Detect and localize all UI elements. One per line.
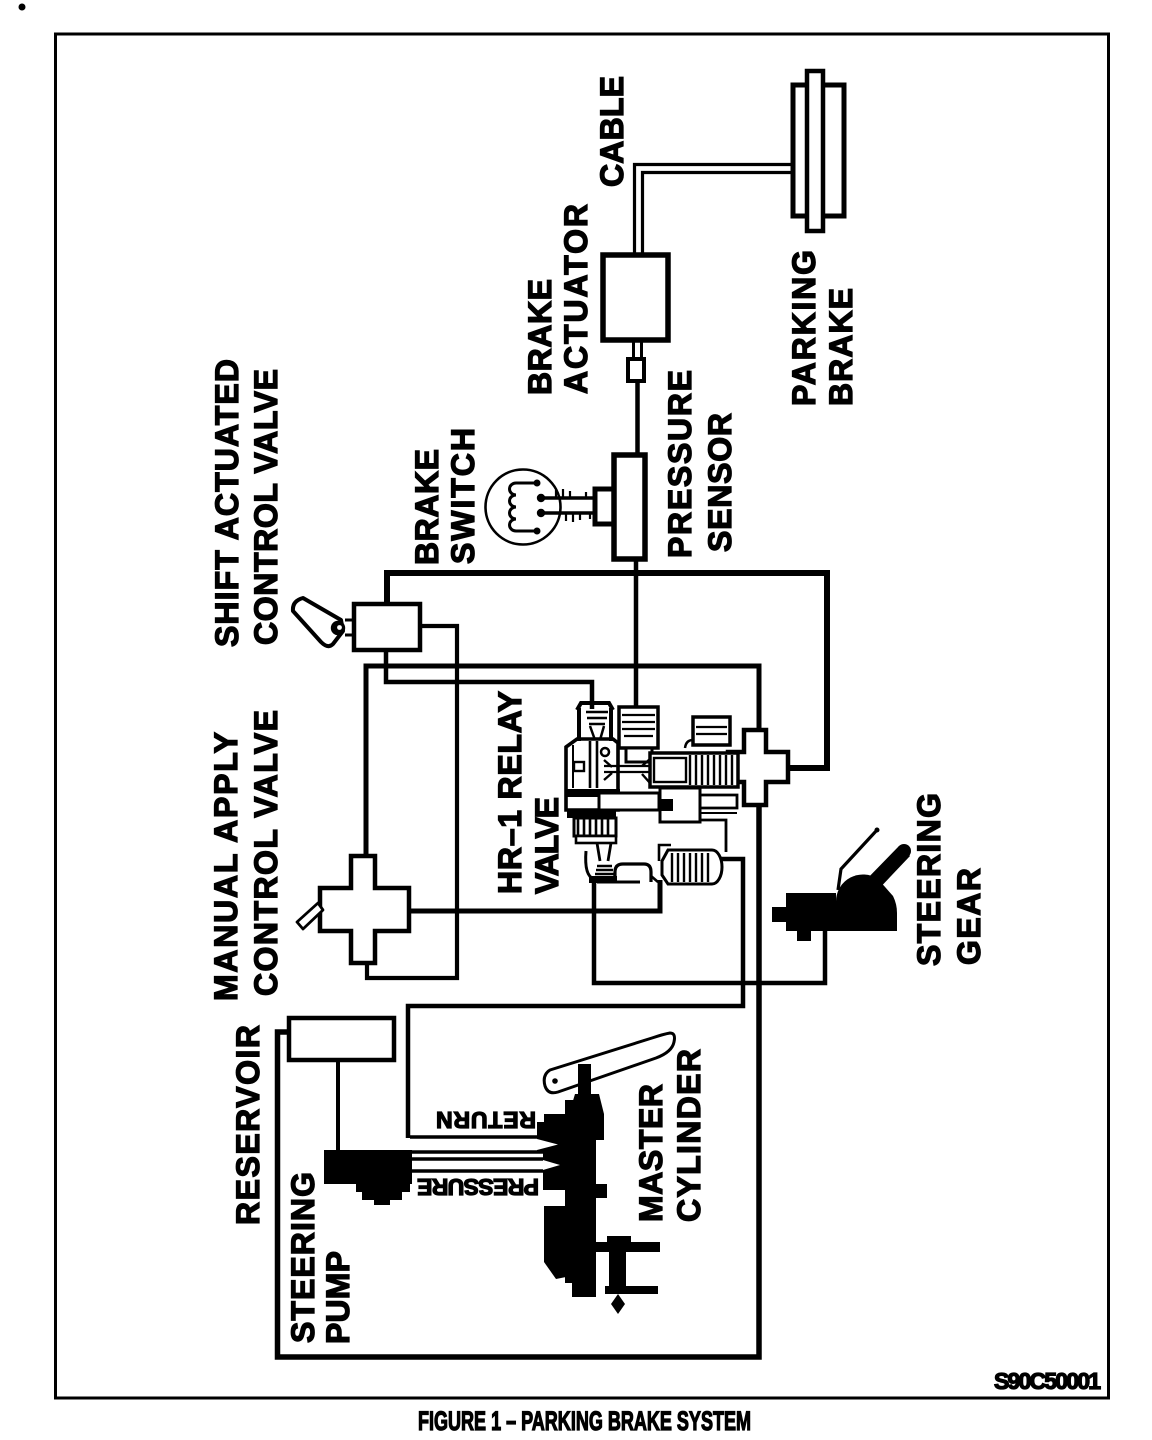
svg-text:RETURN: RETURN	[436, 1107, 536, 1133]
svg-text:SWITCH: SWITCH	[445, 428, 481, 564]
svg-text:MANUAL APPLY: MANUAL APPLY	[208, 732, 244, 1001]
svg-text:PRESSURE: PRESSURE	[662, 370, 698, 558]
svg-text:RESERVOIR: RESERVOIR	[230, 1025, 266, 1225]
svg-text:VALVE: VALVE	[529, 797, 565, 894]
svg-text:PRESSURE: PRESSURE	[417, 1174, 539, 1200]
svg-text:CABLE: CABLE	[594, 76, 630, 187]
svg-text:BRAKE: BRAKE	[823, 288, 859, 406]
svg-text:PUMP: PUMP	[320, 1251, 356, 1344]
svg-text:MASTER: MASTER	[633, 1084, 669, 1222]
svg-text:CONTROL VALVE: CONTROL VALVE	[248, 369, 284, 645]
svg-text:SHIFT ACTUATED: SHIFT ACTUATED	[209, 359, 245, 647]
svg-text:STEERING: STEERING	[285, 1172, 321, 1343]
svg-text:GEAR: GEAR	[951, 868, 987, 965]
svg-text:S90C50001: S90C50001	[994, 1368, 1101, 1394]
svg-text:BRAKE: BRAKE	[409, 449, 445, 565]
svg-text:FIGURE 1 – PARKING BRAKE SYSTE: FIGURE 1 – PARKING BRAKE SYSTEM	[418, 1406, 751, 1436]
svg-text:CYLINDER: CYLINDER	[671, 1049, 707, 1222]
svg-text:CONTROL VALVE: CONTROL VALVE	[248, 710, 284, 996]
svg-text:SENSOR: SENSOR	[702, 413, 738, 552]
svg-text:PARKING: PARKING	[786, 250, 822, 406]
svg-text:HR–1 RELAY: HR–1 RELAY	[492, 691, 528, 894]
svg-text:BRAKE: BRAKE	[522, 279, 558, 395]
